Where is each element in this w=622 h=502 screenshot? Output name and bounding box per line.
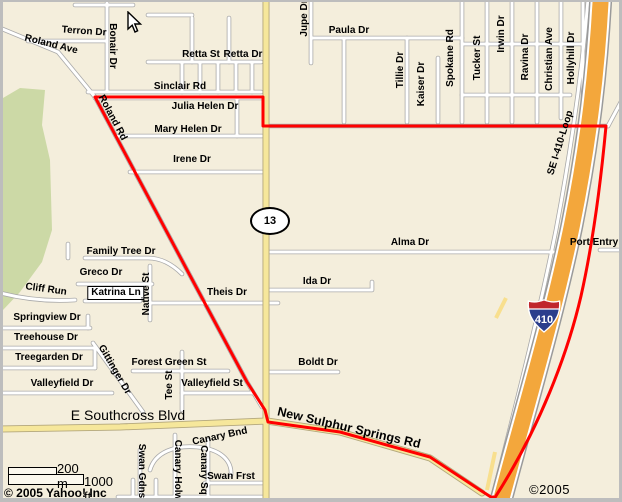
street-label: Retta Dr [224,50,263,60]
route-13-shield: 13 [250,207,290,235]
street-label: Christian Ave [545,27,555,91]
street-label: Swan Frst [207,472,255,482]
street-label: Family Tree Dr [87,247,156,257]
street-label: Spokane Rd [446,29,456,87]
street-label: Retta St [182,50,220,60]
street-label: New Sulphur Springs Rd [276,405,422,450]
street-label: Boldt Dr [298,358,337,368]
street-label: Greco Dr [80,268,123,278]
street-label: Roland Rd [96,94,128,143]
street-label: Port Entry [570,238,618,248]
street-label: Canary Sq [198,445,208,494]
street-label: Treehouse Dr [14,333,78,343]
street-label: Paula Dr [329,26,370,36]
street-label: Native St [142,273,152,316]
street-label: Alma Dr [391,238,429,248]
street-label: Katrina Ln [87,286,144,300]
street-label: Kaiser Dr [417,62,427,106]
street-label: Roland Ave [23,34,78,57]
street-label: Theis Dr [207,288,247,298]
street-label: Springview Dr [13,313,80,323]
street-label: Valleyfield St [181,379,243,389]
map-border-top [0,0,622,2]
street-label: Bonair Dr [107,23,117,69]
interstate-410-shield: 410 [527,299,561,333]
street-label: Valleyfield Dr [31,379,94,389]
map-viewport[interactable]: Roland AveTerron DrBonair DrRoland RdRet… [0,0,622,502]
street-label: Tee St [165,370,175,399]
street-label: Irwin Dr [497,15,507,52]
route-13-number: 13 [264,215,276,227]
street-label: Ida Dr [303,277,331,287]
street-label: SE I-410-Loop [546,110,575,177]
interstate-410-number: 410 [535,314,553,326]
street-label: Swan Gdns [136,444,146,498]
street-label: Cliff Run [25,282,68,298]
street-label: Irene Dr [173,155,211,165]
street-label: Ravina Dr [521,34,531,81]
street-label: Mary Helen Dr [154,125,221,135]
street-label: Forest Green St [131,358,206,368]
street-label: Terron Dr [61,25,106,38]
street-label: Treegarden Dr [15,353,83,363]
street-labels-layer: Roland AveTerron DrBonair DrRoland RdRet… [0,0,622,502]
street-label: Canary Holw [172,440,182,501]
street-label: Hollyhill Dr [567,32,577,85]
street-label: Julia Helen Dr [172,102,239,112]
street-label: E Southcross Blvd [71,408,185,422]
street-label: Gittinger Dr [96,343,132,396]
street-label: Tucker St [473,36,483,81]
mouse-cursor-icon [127,11,143,35]
street-label: Jupe Dr [300,0,310,37]
map-border-bottom [0,498,622,502]
map-border-left [0,0,3,502]
street-label: Sinclair Rd [154,82,206,92]
street-label: Tillie Dr [396,52,406,89]
